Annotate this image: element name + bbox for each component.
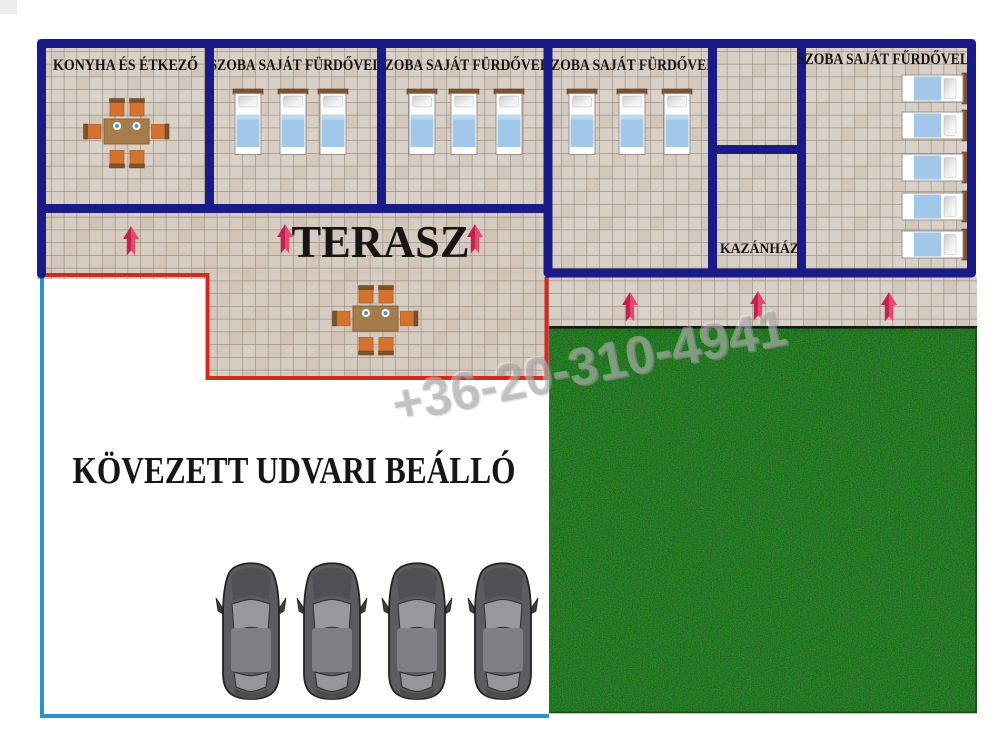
svg-text:SZOBA SAJÁT FÜRDŐVEL: SZOBA SAJÁT FÜRDŐVEL [544, 55, 716, 74]
svg-text:SZOBA SAJÁT FŰRDŐVEL: SZOBA SAJÁT FŰRDŐVEL [797, 49, 969, 68]
svg-text:KÖVEZETT UDVARI BEÁLLÓ: KÖVEZETT UDVARI BEÁLLÓ [73, 450, 516, 492]
svg-text:SZOBA SAJÁT FÜRDŐVEL: SZOBA SAJÁT FÜRDŐVEL [377, 55, 549, 74]
svg-text:TERASZ: TERASZ [292, 216, 470, 267]
svg-text:KAZÁNHÁZ: KAZÁNHÁZ [720, 240, 799, 257]
svg-text:SZOBA SAJÁT FÜRDŐVEL: SZOBA SAJÁT FÜRDŐVEL [210, 55, 382, 74]
svg-text:KONYHA ÉS ÉTKEZŐ: KONYHA ÉS ÉTKEZŐ [53, 55, 198, 74]
